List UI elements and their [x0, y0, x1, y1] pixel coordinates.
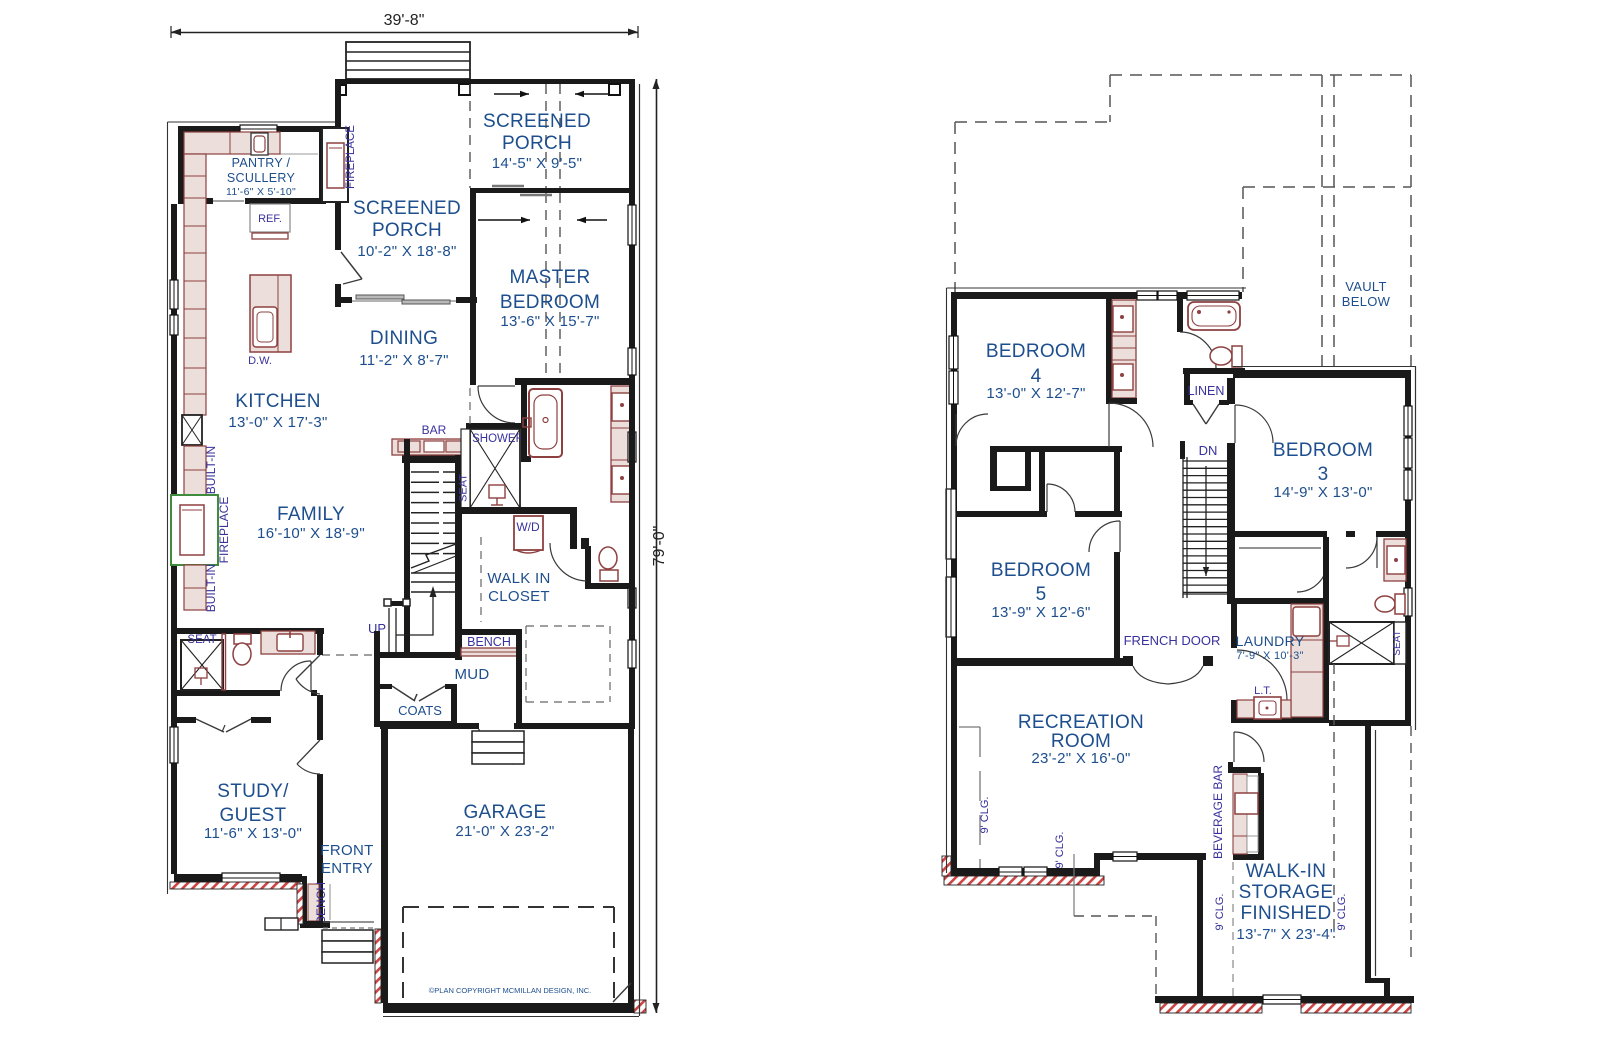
svg-text:WALK-IN: WALK-IN	[1246, 861, 1327, 882]
svg-text:SCREENED: SCREENED	[483, 111, 591, 132]
svg-text:BEDROOM: BEDROOM	[1273, 440, 1373, 461]
svg-text:©PLAN COPYRIGHT MCMILLAN DESIG: ©PLAN COPYRIGHT MCMILLAN DESIGN, INC.	[429, 986, 592, 995]
svg-text:14'-5" X 9'-5": 14'-5" X 9'-5"	[492, 155, 583, 172]
svg-text:39'-8": 39'-8"	[384, 12, 425, 29]
svg-text:SEAT: SEAT	[1392, 630, 1403, 655]
svg-text:PORCH: PORCH	[502, 133, 572, 154]
svg-text:BUILT-IN: BUILT-IN	[204, 564, 218, 612]
svg-text:VAULT: VAULT	[1345, 279, 1386, 294]
svg-text:SCULLERY: SCULLERY	[227, 171, 296, 185]
svg-text:13'-7" X 23'-4": 13'-7" X 23'-4"	[1236, 926, 1335, 943]
svg-text:SEAT: SEAT	[458, 474, 470, 502]
svg-text:13'-9" X 12'-6": 13'-9" X 12'-6"	[991, 604, 1090, 621]
svg-text:BEDROOM: BEDROOM	[986, 341, 1086, 362]
svg-text:MUD: MUD	[454, 666, 489, 683]
svg-text:79'-0": 79'-0"	[651, 526, 668, 567]
svg-text:3: 3	[1318, 464, 1329, 485]
svg-text:9' CLG.: 9' CLG.	[1054, 832, 1066, 869]
svg-text:FRENCH DOOR: FRENCH DOOR	[1124, 633, 1221, 648]
svg-text:9' CLG.: 9' CLG.	[1336, 894, 1348, 931]
svg-text:BEDROOM: BEDROOM	[991, 560, 1091, 581]
svg-text:FIREPLACE: FIREPLACE	[345, 125, 357, 189]
svg-text:10'-2" X 18'-8": 10'-2" X 18'-8"	[357, 243, 456, 260]
svg-text:CLOSET: CLOSET	[488, 588, 550, 605]
svg-text:BAR: BAR	[422, 423, 447, 437]
svg-text:11'-6" X 5'-10": 11'-6" X 5'-10"	[226, 186, 296, 198]
svg-text:WALK IN: WALK IN	[487, 570, 550, 587]
svg-text:MASTER: MASTER	[510, 267, 591, 288]
svg-text:21'-0" X 23'-2": 21'-0" X 23'-2"	[455, 823, 554, 840]
svg-text:SCREENED: SCREENED	[353, 198, 461, 219]
svg-text:D.W.: D.W.	[248, 355, 272, 367]
svg-text:COATS: COATS	[398, 703, 442, 718]
svg-text:5: 5	[1036, 584, 1047, 605]
svg-text:14'-9" X 13'-0": 14'-9" X 13'-0"	[1273, 484, 1372, 501]
svg-text:ROOM: ROOM	[1051, 731, 1111, 752]
svg-text:ENTRY: ENTRY	[321, 860, 373, 877]
svg-text:STORAGE: STORAGE	[1239, 882, 1334, 903]
svg-text:SHOWER: SHOWER	[472, 433, 524, 445]
svg-text:W/D: W/D	[516, 520, 540, 534]
svg-text:KITCHEN: KITCHEN	[235, 391, 321, 412]
svg-text:FAMILY: FAMILY	[277, 504, 345, 525]
svg-text:FIREPLACE: FIREPLACE	[217, 497, 231, 564]
svg-text:13'-6" X 15'-7": 13'-6" X 15'-7"	[500, 313, 599, 330]
svg-text:16'-10" X 18'-9": 16'-10" X 18'-9"	[257, 525, 365, 542]
svg-text:LINEN: LINEN	[1188, 384, 1225, 398]
svg-text:BENCH: BENCH	[314, 882, 328, 924]
svg-text:GUEST: GUEST	[220, 805, 287, 826]
svg-text:4: 4	[1031, 366, 1042, 387]
svg-text:LAUNDRY: LAUNDRY	[1236, 633, 1305, 649]
svg-text:9' CLG.: 9' CLG.	[1214, 894, 1226, 931]
svg-text:PORCH: PORCH	[372, 220, 442, 241]
svg-text:GARAGE: GARAGE	[463, 802, 546, 823]
svg-text:DN: DN	[1199, 443, 1218, 458]
svg-text:BEDROOM: BEDROOM	[500, 292, 600, 313]
svg-text:SEAT: SEAT	[187, 634, 216, 646]
svg-text:BENCH: BENCH	[467, 635, 511, 649]
svg-text:9' CLG.: 9' CLG.	[979, 797, 991, 834]
svg-text:13'-0" X 17'-3": 13'-0" X 17'-3"	[228, 414, 327, 431]
svg-text:13'-0" X 12'-7": 13'-0" X 12'-7"	[986, 385, 1085, 402]
svg-text:PANTRY /: PANTRY /	[232, 156, 291, 170]
svg-text:FINISHED: FINISHED	[1240, 903, 1331, 924]
svg-text:23'-2" X 16'-0": 23'-2" X 16'-0"	[1031, 750, 1130, 767]
svg-text:BUILT-IN: BUILT-IN	[204, 446, 218, 494]
svg-text:RECREATION: RECREATION	[1018, 712, 1144, 733]
svg-text:REF.: REF.	[258, 213, 282, 225]
svg-text:BEVERAGE BAR: BEVERAGE BAR	[1211, 765, 1225, 859]
svg-text:FRONT: FRONT	[320, 842, 373, 859]
svg-text:11'-6" X 13'-0": 11'-6" X 13'-0"	[204, 825, 302, 842]
svg-text:STUDY/: STUDY/	[217, 781, 289, 802]
svg-text:7'-9" X 10'-3": 7'-9" X 10'-3"	[1236, 650, 1304, 662]
svg-text:11'-2" X 8'-7": 11'-2" X 8'-7"	[359, 352, 449, 369]
svg-text:BELOW: BELOW	[1342, 294, 1391, 309]
svg-text:L.T.: L.T.	[1254, 685, 1272, 697]
svg-text:DINING: DINING	[370, 328, 438, 349]
